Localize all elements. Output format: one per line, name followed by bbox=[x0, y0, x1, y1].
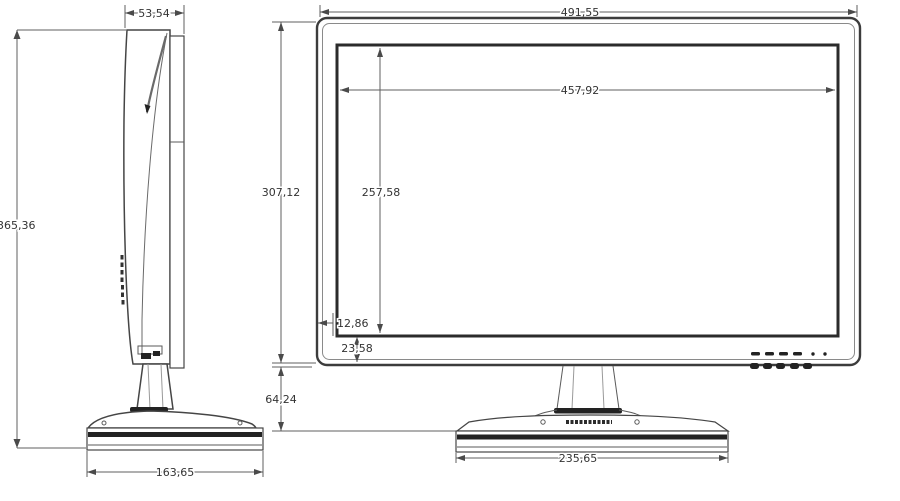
side-stand bbox=[87, 364, 263, 450]
screen-side-offset-label: 12,86 bbox=[337, 317, 369, 330]
side-rear-plate bbox=[170, 36, 184, 368]
front-stand bbox=[456, 366, 728, 452]
side-total-height-label: 365,36 bbox=[0, 219, 36, 232]
front-height-label: 307,12 bbox=[262, 186, 301, 199]
technical-drawing-canvas: 365,36 53,54 bbox=[0, 0, 900, 501]
monitor-dimension-drawing: 365,36 53,54 bbox=[0, 0, 900, 501]
side-base-dimension: 163,65 bbox=[87, 451, 263, 479]
base-width-label: 235,65 bbox=[559, 452, 598, 465]
power-led-icon bbox=[811, 352, 814, 355]
screen-height-label: 257,58 bbox=[362, 186, 401, 199]
front-view: 491,55 457,92 257,58 307,12 bbox=[262, 5, 860, 465]
side-depth-label: 53,54 bbox=[138, 7, 170, 20]
side-vent-slots bbox=[121, 255, 125, 305]
osd-button-icon bbox=[765, 352, 774, 356]
osd-button-icon bbox=[779, 352, 788, 356]
stand-height-dimension: 64,24 bbox=[265, 367, 456, 431]
stand-height-label: 64,24 bbox=[265, 393, 297, 406]
side-base-plinth bbox=[87, 428, 263, 450]
screen-bottom-offset-label: 23,58 bbox=[341, 342, 373, 355]
side-plinth-band bbox=[88, 432, 262, 437]
power-led-icon bbox=[823, 352, 826, 355]
side-base-label: 163,65 bbox=[156, 466, 195, 479]
front-plinth-band bbox=[457, 435, 727, 440]
front-base-top bbox=[457, 415, 728, 431]
side-view: 365,36 53,54 bbox=[0, 5, 263, 479]
side-stand-neck bbox=[137, 364, 173, 409]
side-total-height-dimension: 365,36 bbox=[0, 30, 126, 448]
base-width-dimension: 235,65 bbox=[456, 452, 728, 465]
osd-button-icon bbox=[793, 352, 802, 356]
front-base-plinth bbox=[456, 431, 728, 452]
screen-width-label: 457,92 bbox=[561, 84, 600, 97]
side-base-oval bbox=[88, 411, 256, 428]
front-stand-collar bbox=[554, 408, 622, 414]
front-height-dimension: 307,12 bbox=[262, 22, 316, 363]
osd-button-icon bbox=[751, 352, 760, 356]
side-panel-profile bbox=[121, 30, 185, 368]
